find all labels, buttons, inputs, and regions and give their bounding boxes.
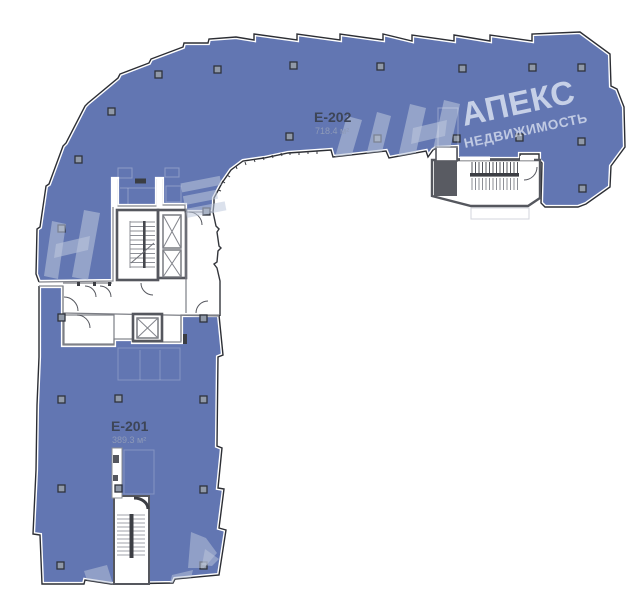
svg-text:718.4 м²: 718.4 м² [315,126,349,136]
svg-text:E-202: E-202 [314,109,352,125]
svg-text:389.3 м²: 389.3 м² [112,435,146,445]
svg-text:E-201: E-201 [111,418,149,434]
